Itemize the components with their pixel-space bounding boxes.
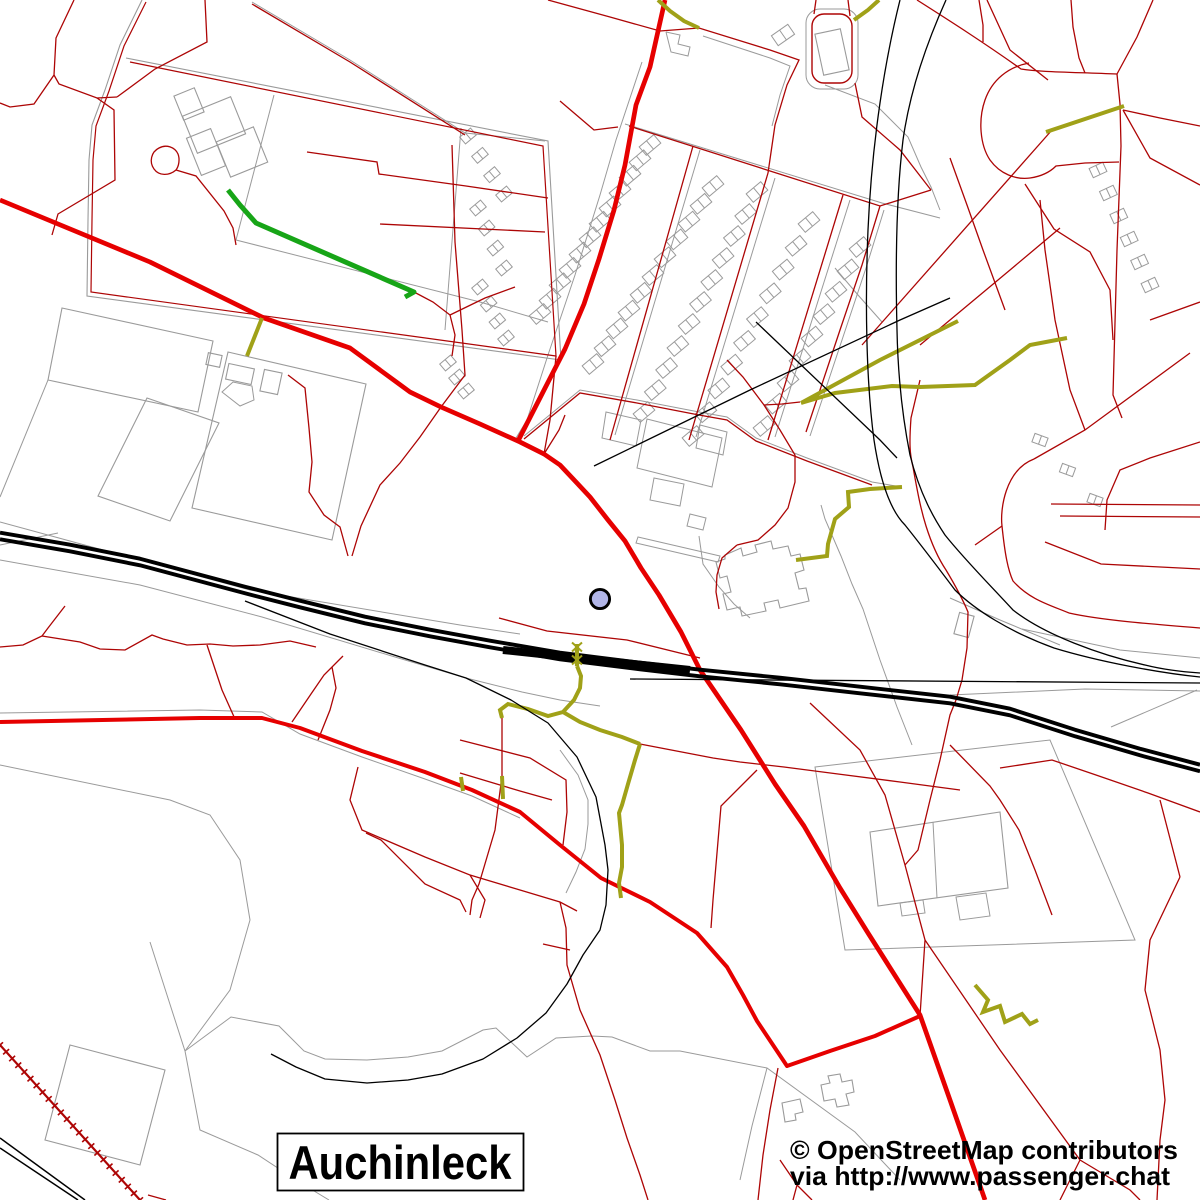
svg-text:via http://www.passenger.chat: via http://www.passenger.chat: [790, 1161, 1170, 1191]
svg-text:Auchinleck: Auchinleck: [289, 1136, 513, 1189]
